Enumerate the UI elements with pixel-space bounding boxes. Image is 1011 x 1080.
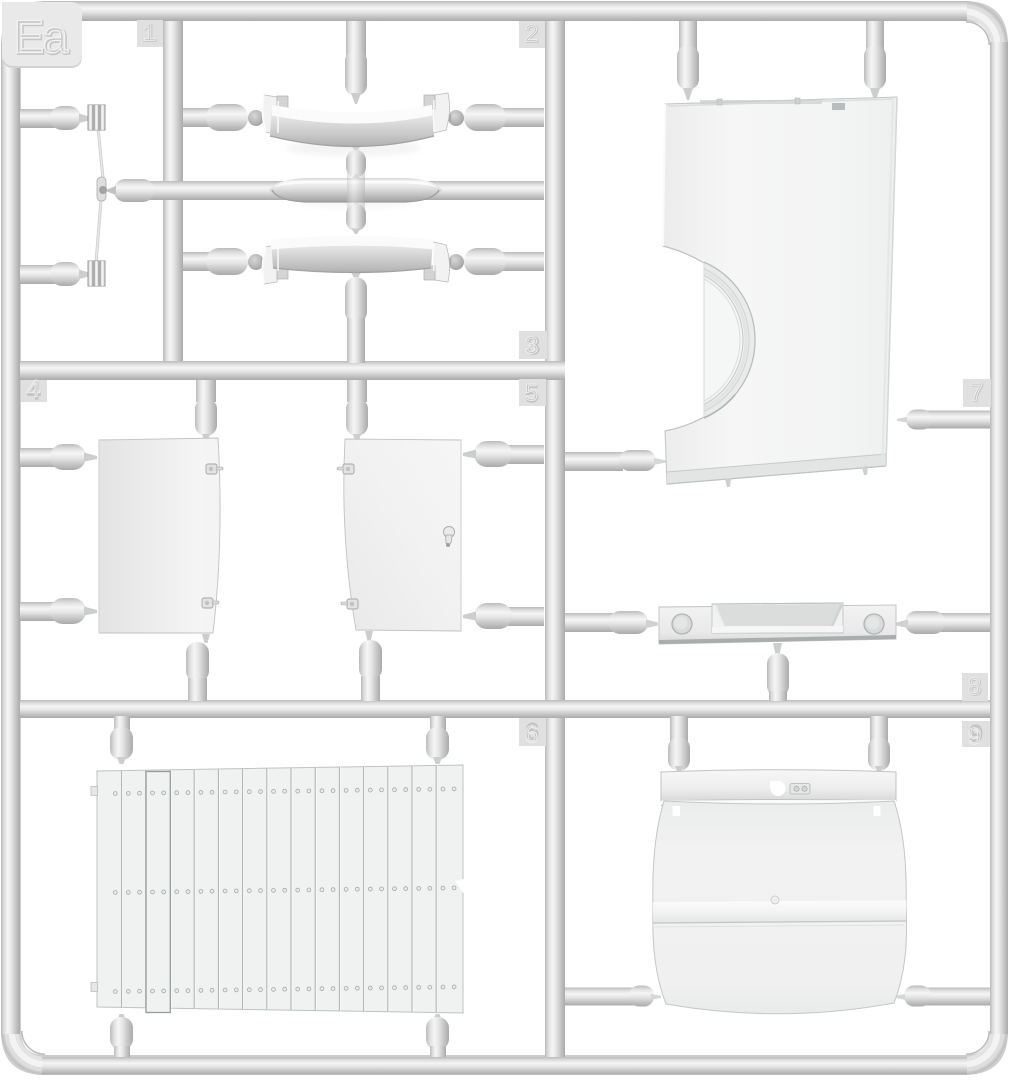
svg-text:6: 6	[525, 721, 538, 748]
svg-text:3: 3	[525, 332, 538, 359]
svg-text:2: 2	[525, 20, 538, 47]
svg-text:4: 4	[27, 375, 40, 402]
svg-text:5: 5	[525, 379, 538, 406]
svg-text:1: 1	[143, 19, 156, 46]
svg-text:Ea: Ea	[14, 11, 69, 63]
svg-text:8: 8	[968, 673, 981, 700]
svg-text:9: 9	[968, 723, 981, 750]
svg-text:7: 7	[970, 379, 983, 406]
